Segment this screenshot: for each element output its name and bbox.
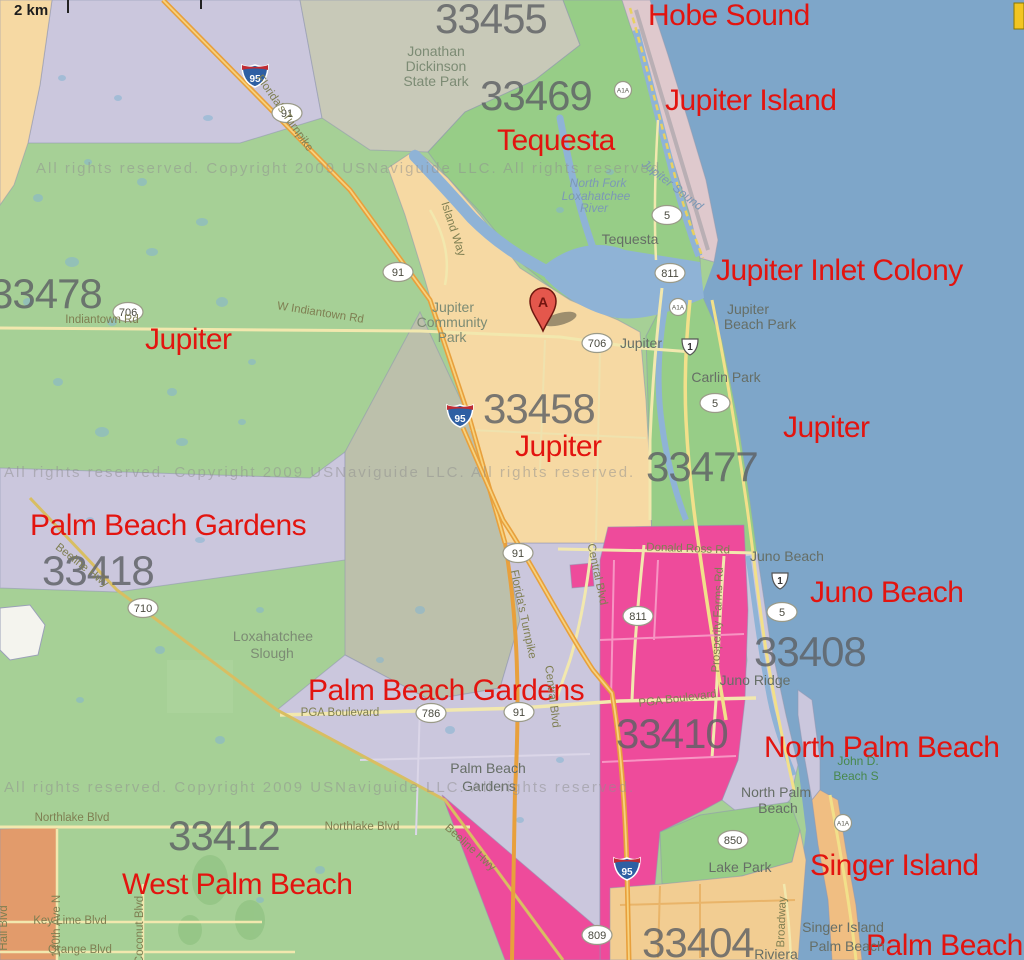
route-shield-oval: 5 [652, 206, 682, 225]
place-label: Beach [758, 800, 798, 816]
route-shield-oval: 811 [623, 607, 653, 626]
city-label: Jupiter [145, 323, 232, 356]
road-label: Broadway [775, 896, 789, 948]
route-shield-label: 5 [779, 607, 785, 619]
route-shield-label: 91 [512, 548, 524, 560]
place-label: Palm Beach [809, 938, 884, 954]
place-label: Beach S [833, 769, 878, 783]
interstate-shield-label: 95 [454, 414, 466, 425]
route-shield-label: 91 [392, 267, 404, 279]
zip-label: 33478 [0, 270, 102, 317]
route-shield-label: 811 [661, 268, 679, 280]
route-shield-oval: 5 [767, 603, 797, 622]
place-label: Park [438, 329, 468, 345]
scale-label: 2 km [14, 2, 48, 19]
city-label: Jupiter Inlet Colony [716, 254, 963, 287]
city-label: Juno Beach [810, 576, 963, 609]
place-label: North Fork [570, 176, 628, 190]
road-label: Northlake Blvd [325, 821, 400, 833]
city-label: Jupiter Island [665, 84, 836, 117]
road-label: Hall Blvd [0, 905, 10, 950]
route-shield-label: 710 [134, 603, 152, 615]
zip-label: 33477 [646, 443, 758, 490]
place-label: Juno Ridge [720, 672, 791, 688]
place-label: Loxahatchee [233, 628, 313, 644]
route-shield-oval: 811 [655, 264, 685, 283]
route-shield-oval: 809 [582, 926, 612, 945]
map-canvas[interactable]: 9191919170670671078681181155585080995959… [0, 0, 1024, 960]
place-label: Slough [250, 645, 294, 661]
place-label: Community [417, 314, 488, 330]
a1a-shield-label: A1A [672, 305, 685, 312]
place-label: Juno Beach [750, 548, 824, 564]
a1a-shield: A1A [615, 82, 632, 99]
place-label: Lake Park [708, 859, 772, 875]
city-label: Palm Beach Gardens [308, 674, 584, 707]
place-label: Jupiter [727, 301, 769, 317]
place-label: Jupiter [432, 299, 474, 315]
route-shield-label: 850 [724, 835, 742, 847]
route-shield-oval: 850 [718, 831, 748, 850]
city-label: Singer Island [810, 849, 979, 882]
road-label: Indiantown Rd [65, 314, 139, 326]
a1a-shield-label: A1A [617, 88, 630, 95]
city-label: Tequesta [497, 124, 616, 157]
place-label: Jonathan [407, 43, 465, 59]
zip-label: 33455 [435, 0, 547, 42]
zip-label: 33469 [480, 72, 592, 119]
place-label: Palm Beach [450, 760, 525, 776]
place-label: Carlin Park [691, 369, 761, 385]
zip-label: 33404 [642, 919, 754, 960]
zip-label: 33412 [168, 812, 280, 859]
route-shield-oval: 706 [582, 334, 612, 353]
city-label: Hobe Sound [648, 0, 810, 32]
a1a-shield-label: A1A [837, 821, 850, 828]
corner-widget[interactable] [1014, 3, 1024, 29]
route-shield-label: 706 [588, 338, 606, 350]
zip-label: 33458 [483, 385, 595, 432]
route-shield-oval: 91 [383, 263, 413, 282]
attribution-watermark: All rights reserved. Copyright 2009 USNa… [4, 464, 635, 481]
region-topleft-lavender [28, 0, 322, 143]
road-label: Key Lime Blvd [33, 915, 107, 927]
place-label: North Palm [741, 784, 811, 800]
place-label: Tequesta [602, 231, 659, 247]
place-label: River [580, 201, 609, 215]
city-label: Palm Beach Gardens [30, 509, 306, 542]
place-label: John D. [837, 754, 878, 768]
road-label: Northlake Blvd [35, 812, 110, 824]
attribution-watermark: All rights reserved. Copyright 2009 USNa… [4, 779, 635, 796]
place-label: State Park [403, 73, 469, 89]
route-shield-oval: 710 [128, 599, 158, 618]
route-shield-label: 5 [712, 398, 718, 410]
us-route-shield-label: 1 [687, 342, 693, 353]
route-shield-label: 5 [664, 210, 670, 222]
city-label: North Palm Beach [764, 731, 999, 764]
road-label: PGA Boulevard [301, 707, 380, 719]
place-label: Beach Park [724, 316, 797, 332]
city-label: Jupiter [515, 430, 602, 463]
city-label: Palm Beach [866, 929, 1023, 960]
city-label: West Palm Beach [122, 868, 352, 901]
route-shield-label: 91 [513, 707, 525, 719]
route-shield-oval: 91 [503, 544, 533, 563]
a1a-shield: A1A [835, 815, 852, 832]
road-label: Coconut Blvd [134, 896, 146, 960]
us-route-shield-label: 1 [777, 576, 783, 587]
attribution-watermark: All rights reserved. Copyright 2009 USNa… [36, 160, 667, 177]
route-shield-label: 809 [588, 930, 606, 942]
zip-label: 33408 [754, 628, 866, 675]
route-shield-label: 811 [629, 611, 647, 623]
city-label: Jupiter [783, 411, 870, 444]
road-label: Orange Blvd [48, 944, 112, 956]
zip-label: 33410 [616, 710, 728, 757]
marker-letter: A [538, 294, 548, 310]
a1a-shield: A1A [670, 299, 687, 316]
place-label: Dickinson [406, 58, 467, 74]
interstate-shield-label: 95 [621, 867, 633, 878]
route-shield-label: 786 [422, 708, 440, 720]
route-shield-oval: 5 [700, 394, 730, 413]
place-label: Singer Island [802, 919, 884, 935]
place-label: Jupiter [620, 335, 662, 351]
